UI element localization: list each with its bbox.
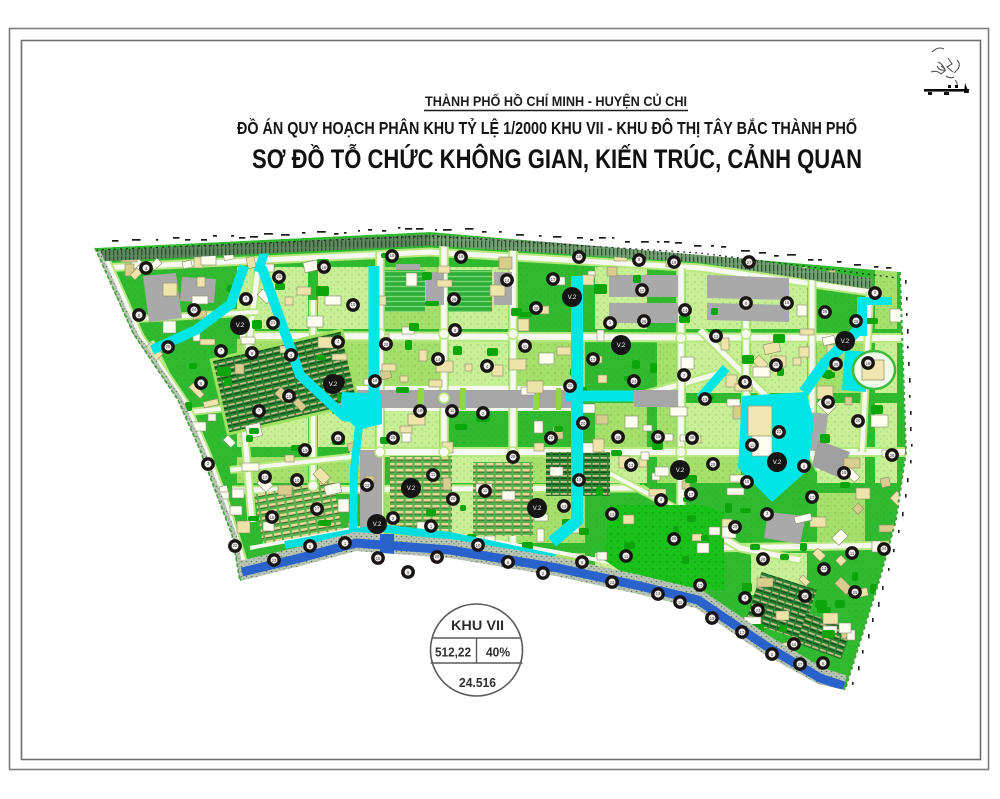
svg-text:28: 28 [534, 306, 539, 311]
svg-text:28: 28 [834, 362, 839, 367]
svg-text:11: 11 [850, 551, 855, 556]
svg-text:V.2: V.2 [617, 343, 626, 349]
svg-text:10: 10 [295, 478, 300, 483]
svg-text:15: 15 [842, 470, 847, 475]
svg-text:11: 11 [483, 488, 488, 493]
svg-text:22: 22 [365, 483, 370, 488]
svg-text:22: 22 [777, 429, 782, 434]
svg-text:V.2: V.2 [568, 295, 577, 301]
svg-text:24: 24 [192, 307, 197, 312]
svg-text:10: 10 [476, 543, 481, 548]
svg-text:20: 20 [803, 594, 808, 599]
svg-text:15: 15 [376, 556, 381, 561]
svg-text:11: 11 [523, 344, 528, 349]
svg-text:26: 26 [452, 297, 457, 302]
svg-text:19: 19 [866, 361, 871, 366]
svg-text:11: 11 [624, 554, 629, 559]
svg-text:15: 15 [745, 479, 750, 484]
svg-text:14: 14 [436, 357, 441, 362]
svg-text:29: 29 [391, 435, 396, 440]
svg-text:11: 11 [678, 600, 683, 605]
svg-text:26: 26 [672, 536, 677, 541]
svg-text:13: 13 [610, 512, 615, 517]
svg-text:24.516: 24.516 [459, 676, 496, 690]
svg-text:11: 11 [431, 472, 436, 477]
svg-text:22: 22 [568, 383, 573, 388]
svg-text:12: 12 [640, 288, 645, 293]
svg-text:15: 15 [785, 300, 790, 305]
svg-text:16: 16 [577, 477, 582, 482]
svg-text:28: 28 [549, 435, 554, 440]
svg-text:17: 17 [263, 475, 268, 480]
svg-text:19: 19 [703, 397, 708, 402]
svg-text:V.2: V.2 [373, 522, 382, 528]
svg-text:25: 25 [853, 590, 858, 595]
svg-text:13: 13 [656, 591, 661, 596]
svg-text:20: 20 [581, 421, 586, 426]
svg-text:17: 17 [698, 583, 703, 588]
svg-text:14: 14 [683, 308, 688, 313]
svg-text:17: 17 [689, 492, 694, 497]
svg-text:V.2: V.2 [841, 339, 850, 345]
svg-text:20: 20 [856, 418, 861, 423]
svg-text:17: 17 [740, 630, 745, 635]
svg-text:V.2: V.2 [773, 460, 782, 466]
svg-text:28: 28 [511, 454, 516, 459]
svg-text:19: 19 [270, 515, 275, 520]
svg-text:17: 17 [591, 357, 596, 362]
svg-text:12: 12 [629, 463, 634, 468]
svg-text:20: 20 [826, 400, 831, 405]
svg-text:V.2: V.2 [407, 486, 416, 492]
svg-text:27: 27 [747, 260, 752, 265]
svg-text:19: 19 [418, 408, 423, 413]
svg-text:28: 28 [774, 362, 779, 367]
svg-text:23: 23 [272, 558, 277, 563]
svg-text:28: 28 [166, 344, 171, 349]
svg-text:19: 19 [656, 434, 661, 439]
svg-text:29: 29 [435, 554, 440, 559]
svg-text:11: 11 [450, 408, 455, 413]
svg-text:512,22: 512,22 [435, 646, 471, 660]
svg-text:23: 23 [756, 608, 761, 613]
svg-text:V.2: V.2 [533, 506, 542, 512]
svg-text:17: 17 [810, 495, 815, 500]
svg-text:12: 12 [714, 334, 719, 339]
svg-text:19: 19 [303, 448, 308, 453]
svg-text:23: 23 [610, 580, 615, 585]
svg-text:19: 19 [672, 260, 677, 265]
svg-text:21: 21 [271, 320, 276, 325]
svg-text:15: 15 [390, 253, 395, 258]
svg-text:40%: 40% [486, 646, 510, 660]
svg-text:V.2: V.2 [236, 323, 245, 329]
svg-text:16: 16 [577, 254, 582, 259]
svg-text:28: 28 [642, 319, 647, 324]
svg-text:26: 26 [761, 557, 766, 562]
svg-text:V.2: V.2 [676, 468, 685, 474]
svg-text:SƠ ĐỒ TỖ CHỨC KHÔNG GIAN, KIẾN: SƠ ĐỒ TỖ CHỨC KHÔNG GIAN, KIẾN TRÚC, CẢN… [252, 142, 862, 174]
svg-text:25: 25 [854, 319, 859, 324]
svg-text:26: 26 [823, 309, 828, 314]
svg-text:16: 16 [792, 642, 797, 647]
svg-text:13: 13 [710, 616, 715, 621]
svg-text:10: 10 [351, 302, 356, 307]
svg-text:25: 25 [711, 462, 716, 467]
svg-text:24: 24 [632, 379, 637, 384]
svg-text:28: 28 [336, 436, 341, 441]
svg-text:17: 17 [551, 277, 556, 282]
svg-text:26: 26 [890, 453, 895, 458]
svg-text:28: 28 [616, 435, 621, 440]
svg-text:ĐỒ ÁN QUY HOẠCH PHÂN KHU TỶ LỆ: ĐỒ ÁN QUY HOẠCH PHÂN KHU TỶ LỆ 1/2000 KH… [237, 117, 857, 138]
svg-text:17: 17 [315, 506, 320, 511]
svg-text:11: 11 [750, 443, 755, 448]
svg-text:20: 20 [451, 496, 456, 501]
svg-text:THÀNH PHỐ HỒ CHÍ MINH - HUYỆN: THÀNH PHỐ HỒ CHÍ MINH - HUYỆN CỦ CHI [425, 94, 687, 109]
svg-text:19: 19 [459, 254, 464, 259]
svg-text:14: 14 [505, 278, 510, 283]
svg-text:27: 27 [798, 662, 803, 667]
svg-text:25: 25 [277, 274, 282, 279]
svg-text:KHU VII: KHU VII [451, 617, 504, 633]
svg-text:29: 29 [733, 524, 738, 529]
svg-text:22: 22 [233, 543, 238, 548]
svg-text:18: 18 [373, 378, 378, 383]
svg-text:19: 19 [322, 265, 327, 270]
svg-text:13: 13 [562, 504, 567, 509]
svg-text:V.2: V.2 [329, 382, 338, 388]
svg-text:24: 24 [882, 546, 887, 551]
svg-text:28: 28 [384, 342, 389, 347]
svg-text:10: 10 [287, 394, 292, 399]
svg-text:13: 13 [822, 566, 827, 571]
svg-text:29: 29 [690, 435, 695, 440]
